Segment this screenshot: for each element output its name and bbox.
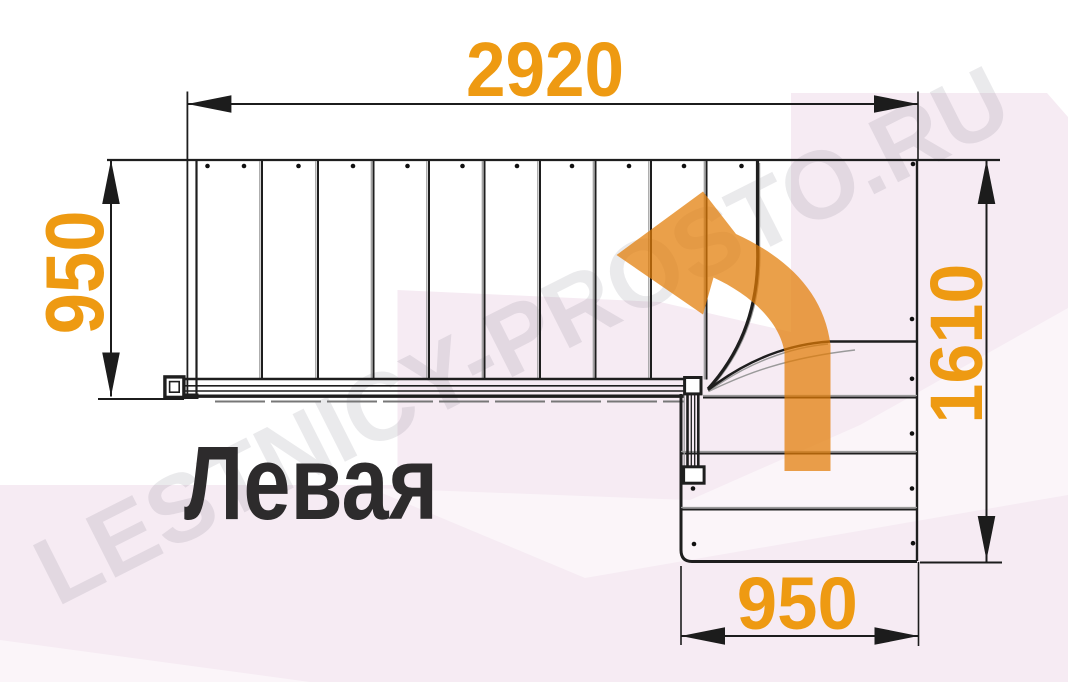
svg-text:Левая: Левая [184,425,438,542]
svg-text:950: 950 [28,210,121,334]
svg-text:2920: 2920 [466,27,624,113]
svg-text:950: 950 [737,562,858,645]
svg-text:1610: 1610 [915,264,998,424]
